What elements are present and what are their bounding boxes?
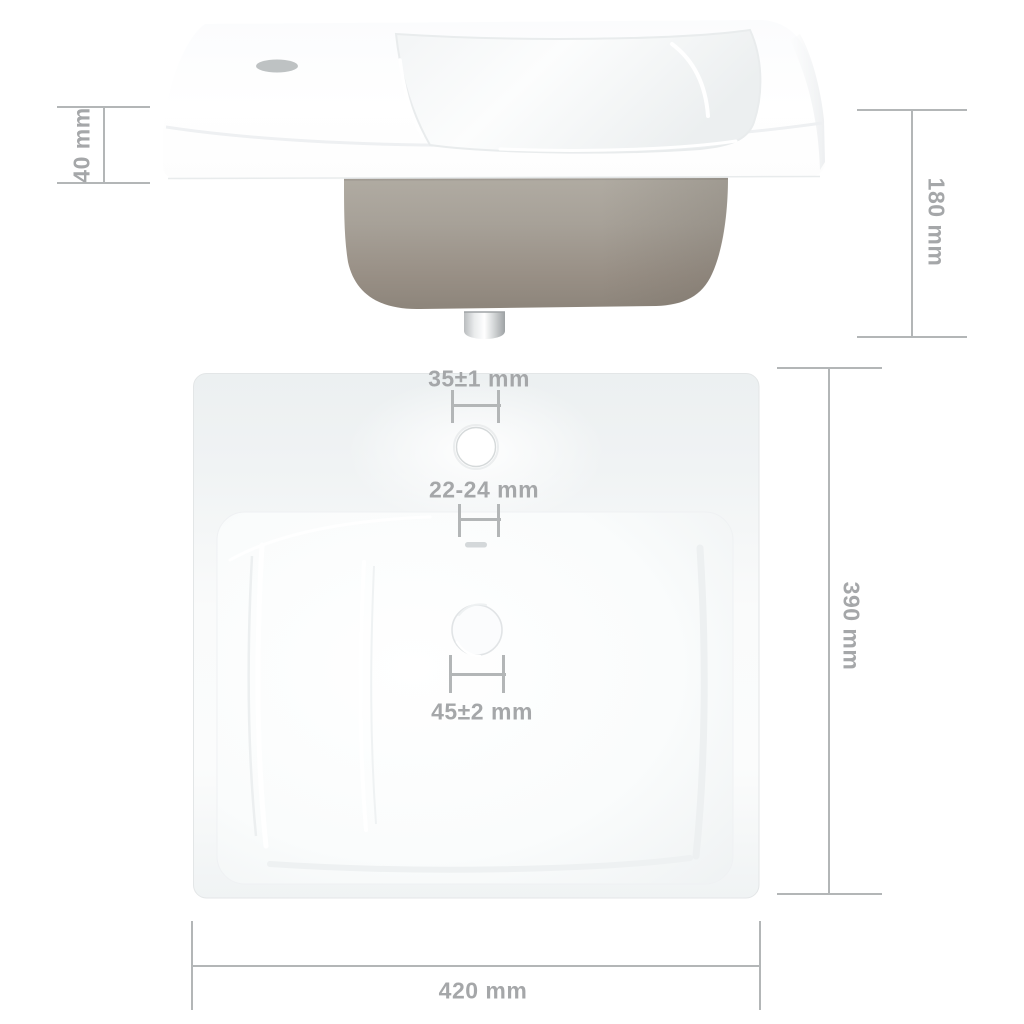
dim-420-cap-right: [759, 921, 761, 1010]
under-bowl-right-shade: [600, 178, 728, 307]
dim-180-cap-top: [857, 109, 967, 111]
faucet-hole: [457, 428, 496, 467]
dim-420-line: [192, 965, 760, 967]
plan-view: [194, 374, 760, 899]
dim-22-line: [459, 518, 501, 521]
dim-180-line: [911, 110, 913, 338]
dim-label-overflow-hole: 22-24 mm: [429, 479, 539, 502]
bowl-top-shadow: [344, 179, 728, 180]
overflow-slot: [465, 542, 487, 548]
front-view: [163, 20, 825, 339]
dim-420-cap-left: [191, 921, 193, 1010]
drain-pipe: [464, 312, 505, 339]
dim-40-line: [103, 107, 105, 184]
dim-390-cap-bottom: [777, 893, 882, 895]
dim-390-cap-top: [777, 367, 882, 369]
dim-45-tick-right: [502, 655, 505, 693]
dim-45-line: [450, 673, 506, 676]
dim-35-tick-left: [451, 390, 454, 423]
dim-45-tick-left: [449, 655, 452, 693]
dim-label-rim-height: 40 mm: [71, 107, 94, 182]
dim-label-depth: 390 mm: [840, 582, 863, 671]
dim-label-width: 420 mm: [439, 980, 528, 1003]
dim-180-cap-bottom: [857, 336, 967, 338]
dim-35-line: [452, 404, 501, 407]
dim-22-tick-left: [458, 504, 461, 537]
dim-35-tick-right: [497, 390, 500, 423]
faucet-hole-front: [256, 60, 298, 73]
dim-label-drain-hole: 45±2 mm: [431, 701, 533, 724]
drain-hole: [452, 604, 502, 656]
dim-22-tick-right: [497, 504, 500, 537]
dim-label-total-height: 180 mm: [925, 178, 948, 267]
sink-illustration: [0, 0, 1024, 1024]
dim-label-faucet-hole: 35±1 mm: [428, 368, 530, 391]
dim-390-line: [828, 368, 830, 895]
washbasin-dimension-diagram: 40 mm 180 mm 35±1 mm 22-24 mm 45±2 mm 39…: [0, 0, 1024, 1024]
